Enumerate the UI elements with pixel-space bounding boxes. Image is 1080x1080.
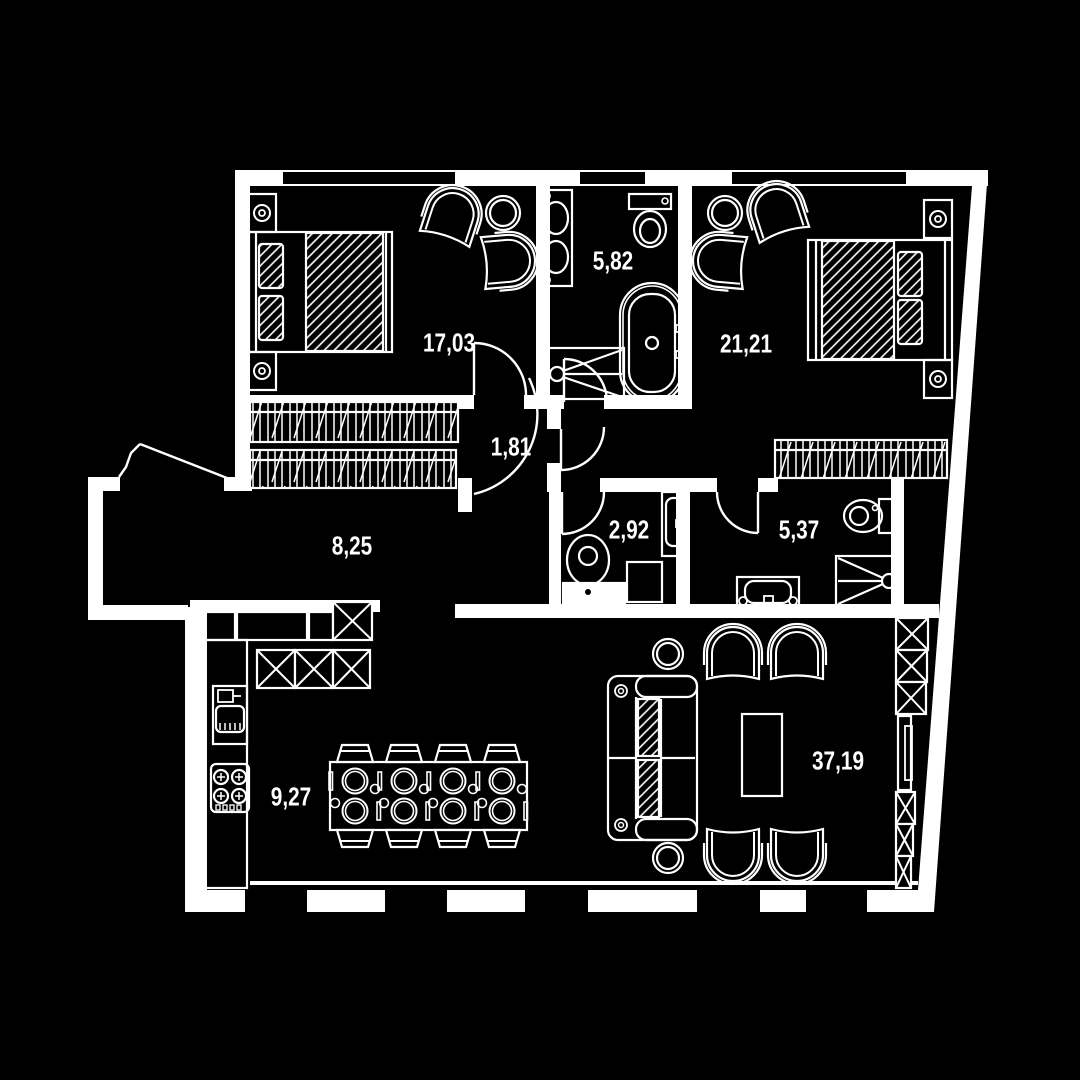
lamp-icon [254, 363, 270, 379]
x-cabinet-icon [295, 650, 333, 688]
window-bottom-5 [806, 887, 867, 913]
dining-chair-icon [484, 830, 520, 847]
window-top-1 [283, 172, 455, 184]
stove-icon [211, 764, 249, 812]
double-bed-icon [249, 232, 392, 352]
glass-icon [331, 799, 340, 808]
glass-icon [518, 785, 527, 794]
floor-plan [0, 0, 1080, 1080]
toilet-icon [844, 499, 894, 533]
armchair-icon [768, 829, 826, 884]
tv-unit-icon [898, 716, 912, 790]
window-top-2 [580, 172, 645, 184]
shower-icon [836, 556, 898, 606]
window-bottom-1 [245, 887, 307, 913]
dining-chair-icon [386, 830, 422, 847]
room-label-bathroom: 5,82 [593, 246, 633, 277]
cutlery-icon [524, 802, 528, 820]
cabinet-icon [237, 612, 307, 640]
x-cabinet-icon [896, 618, 928, 650]
coffee-table-icon [742, 714, 782, 796]
place-settings [329, 769, 528, 824]
x-cabinet-icon [896, 856, 911, 888]
wall-corridor-bottom-a [600, 478, 717, 492]
window-bottom-4 [697, 887, 760, 913]
x-cabinet-icon [896, 792, 915, 824]
armchair-icon [704, 624, 762, 679]
armchair-icon [768, 624, 826, 679]
armchair-icon [417, 178, 489, 248]
toilet-icon [629, 194, 671, 247]
lamp-icon [930, 371, 946, 387]
washbasin-icon [662, 492, 688, 556]
wall-hall-right-stub-bottom [547, 463, 561, 492]
armchair-icon [704, 829, 762, 884]
wardrobe-icon [250, 402, 458, 488]
bedroom2-furniture [688, 174, 952, 478]
lamp-icon [930, 211, 946, 227]
side-table-icon [653, 843, 683, 873]
wall-hallway-top-right [224, 477, 252, 491]
x-cabinet-icon [896, 682, 926, 714]
wall-kitchen-left [185, 607, 207, 912]
nightstand-icon [248, 352, 276, 390]
nightstand-icon [924, 200, 952, 238]
window-top-3 [732, 172, 906, 184]
cabinet-icon [627, 562, 662, 602]
room-label-shower-room: 5,37 [779, 515, 819, 546]
armchair-icon [688, 229, 748, 292]
room-label-living-room: 37,19 [812, 746, 864, 777]
nightstand-icon [924, 360, 952, 398]
side-table-icon [653, 639, 683, 669]
wc-door [562, 492, 604, 534]
side-table-icon [486, 196, 520, 230]
shower-room-door [717, 492, 758, 533]
wc-furniture [563, 492, 688, 603]
wall-bottom-inner-line [250, 881, 918, 885]
washbasin-icon [737, 577, 799, 607]
room-label-bedroom-1: 17,03 [423, 328, 475, 359]
double-bed-icon [808, 240, 952, 360]
room-label-hall: 1,81 [491, 432, 531, 463]
window-bottom-3 [525, 887, 588, 913]
wardrobe-icon [775, 440, 947, 478]
x-cabinet-icon [896, 824, 913, 856]
lamp-icon [254, 205, 270, 221]
wall-central-b [524, 395, 564, 409]
bathroom-furniture [538, 190, 690, 403]
wall-hall-right-stub-top [547, 409, 561, 429]
wall-corridor-bottom-b [758, 478, 778, 492]
dining-chair-icon [435, 745, 471, 762]
shower-icon [546, 348, 624, 399]
hall-right-door [561, 427, 604, 470]
x-cabinet-icon [333, 602, 372, 640]
wall-hallway-left [88, 477, 103, 620]
wall-wc-left [549, 492, 561, 604]
side-table-icon [708, 196, 742, 230]
kitchen-sink-icon [213, 686, 247, 744]
x-cabinet-icon [257, 650, 295, 688]
dining-chair-icon [435, 830, 471, 847]
floor-plan-canvas: 17,03 5,82 21,21 1,81 8,25 2,92 5,37 9,2… [0, 0, 1080, 1080]
wall-hallway-bottom [88, 605, 188, 620]
nightstand-icon [248, 194, 276, 232]
room-label-hallway: 8,25 [332, 531, 372, 562]
room-label-kitchen: 9,27 [271, 782, 311, 813]
dining-chair-icon [484, 745, 520, 762]
dining-chair-icon [386, 745, 422, 762]
wall-hallway-top-left [88, 477, 120, 491]
sofa-icon [608, 676, 697, 840]
x-cabinet-icon [896, 650, 927, 682]
entrance-door [119, 444, 227, 478]
room-label-bedroom-2: 21,21 [720, 329, 772, 360]
window-bottom-2 [385, 887, 447, 913]
x-cabinet-icon [333, 650, 370, 688]
dining-chair-icon [337, 830, 373, 847]
dining-chair-icon [337, 745, 373, 762]
dining-chairs [337, 745, 520, 847]
cabinet-icon [205, 612, 235, 640]
cabinet-icon [309, 612, 333, 640]
armchair-icon [481, 229, 541, 292]
bedroom1-door [474, 343, 526, 395]
room-label-wc: 2,92 [609, 515, 649, 546]
living-room-furniture [608, 624, 912, 884]
wall-hall-left-stub [458, 478, 472, 512]
